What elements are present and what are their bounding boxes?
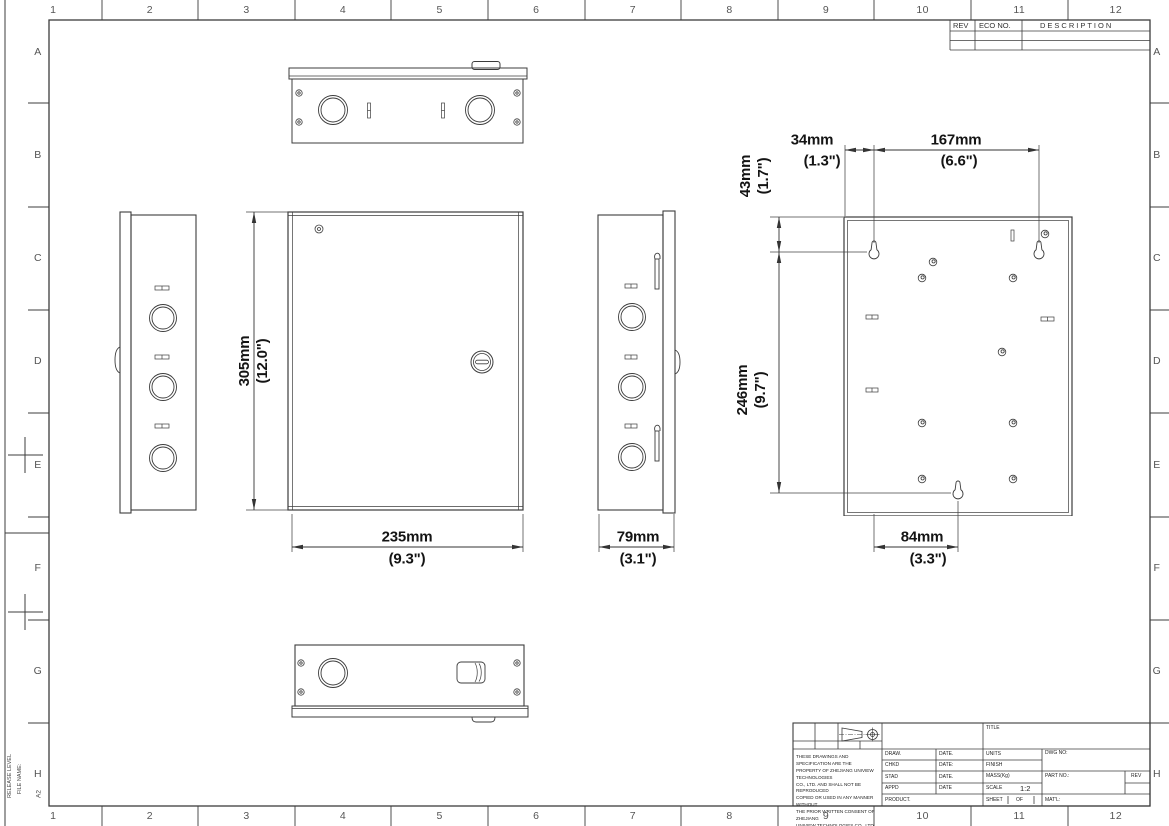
grid-col-12-bottom: 12	[1110, 810, 1123, 822]
disclaimer-line: PROPERTY OF ZHEJIANG UNIVIEW TECHNOLOGIE…	[796, 768, 880, 782]
grid-row-B-right: B	[1153, 149, 1161, 161]
grid-row-H-right: H	[1153, 768, 1161, 780]
scale-label: SCALE	[986, 786, 1002, 791]
grid-row-C-left: C	[34, 252, 42, 264]
finish-label: FINISH	[986, 763, 1002, 768]
grid-row-C-right: C	[1153, 252, 1161, 264]
disclaimer-line: THESE DRAWINGS AND SPECIFICATION ARE THE	[796, 754, 880, 768]
chkd-label: CHKD	[885, 763, 899, 768]
grid-col-9-top: 9	[823, 4, 829, 16]
grid-row-B-left: B	[34, 149, 42, 161]
scale-value: 1:2	[1020, 785, 1030, 793]
stad-date-label: DATE.	[939, 775, 953, 780]
chkd-date-label: DATE:	[939, 763, 953, 768]
disclaimer-line: CO., LTD. AND SHALL NOT BE REPRODUCED	[796, 782, 880, 796]
appd-date-label: DATE	[939, 786, 952, 791]
appd-label: APPD	[885, 786, 899, 791]
sheet-label: SHEET	[986, 798, 1003, 803]
sheet-size-code: A2	[36, 790, 43, 798]
draw-label: DRAW.	[885, 752, 901, 757]
grid-row-G-right: G	[1153, 665, 1162, 677]
mass-label: MASS(Kg)	[986, 774, 1010, 779]
projection-symbol-icon	[839, 728, 880, 742]
file-name-label: FILE NAME:	[17, 764, 23, 795]
grid-col-4-bottom: 4	[340, 810, 346, 822]
matl-label: MAT'L:	[1045, 798, 1060, 803]
grid-row-D-left: D	[34, 355, 42, 367]
grid-col-5-bottom: 5	[437, 810, 443, 822]
release-level-label: RELEASE LEVEL	[7, 754, 13, 798]
grid-row-G-left: G	[34, 665, 43, 677]
grid-col-7-top: 7	[630, 4, 636, 16]
grid-col-8-bottom: 8	[726, 810, 732, 822]
grid-col-1-bottom: 1	[50, 810, 56, 822]
grid-row-E-right: E	[1153, 459, 1161, 471]
grid-col-3-bottom: 3	[243, 810, 249, 822]
grid-col-7-bottom: 7	[630, 810, 636, 822]
grid-row-F-right: F	[1154, 562, 1161, 574]
grid-row-A-left: A	[34, 46, 42, 58]
grid-row-A-right: A	[1153, 46, 1161, 58]
disclaimer-text: THESE DRAWINGS AND SPECIFICATION ARE THE…	[796, 754, 880, 826]
grid-col-6-top: 6	[533, 4, 539, 16]
title-label: TITLE	[986, 726, 1000, 731]
grid-col-10-bottom: 10	[916, 810, 929, 822]
grid-col-2-bottom: 2	[147, 810, 153, 822]
disclaimer-line: THE PRIOR WRITTEN CONSENT OF ZHEJIANG	[796, 809, 880, 823]
rev-label: REV	[1131, 774, 1141, 779]
product-label: PRODUCT.	[885, 798, 911, 803]
grid-col-12-top: 12	[1110, 4, 1123, 16]
dwg-no-label: DWG NO:	[1045, 751, 1068, 756]
grid-col-4-top: 4	[340, 4, 346, 16]
draw-date-label: DATE.	[939, 752, 953, 757]
grid-row-H-left: H	[34, 768, 42, 780]
grid-row-F-left: F	[35, 562, 42, 574]
grid-col-2-top: 2	[147, 4, 153, 16]
part-no-label: PART NO.:	[1045, 774, 1069, 779]
grid-col-9-bottom: 9	[823, 810, 829, 822]
drawing-sheet: REV ECO NO. DESCRIPTION	[0, 0, 1169, 826]
units-label: UNITS	[986, 752, 1001, 757]
title-block-grid	[0, 0, 1169, 826]
grid-col-5-top: 5	[437, 4, 443, 16]
grid-row-D-right: D	[1153, 355, 1161, 367]
of-label: OF	[1016, 798, 1023, 803]
grid-col-8-top: 8	[726, 4, 732, 16]
grid-col-6-bottom: 6	[533, 810, 539, 822]
grid-col-10-top: 10	[916, 4, 929, 16]
grid-col-11-bottom: 11	[1013, 810, 1025, 822]
grid-row-E-left: E	[34, 459, 42, 471]
stad-label: STAD	[885, 775, 898, 780]
grid-col-11-top: 11	[1013, 4, 1025, 16]
disclaimer-line: COPIED OR USED IN ANY MANNER WITHOUT	[796, 795, 880, 809]
grid-col-1-top: 1	[50, 4, 56, 16]
grid-col-3-top: 3	[243, 4, 249, 16]
